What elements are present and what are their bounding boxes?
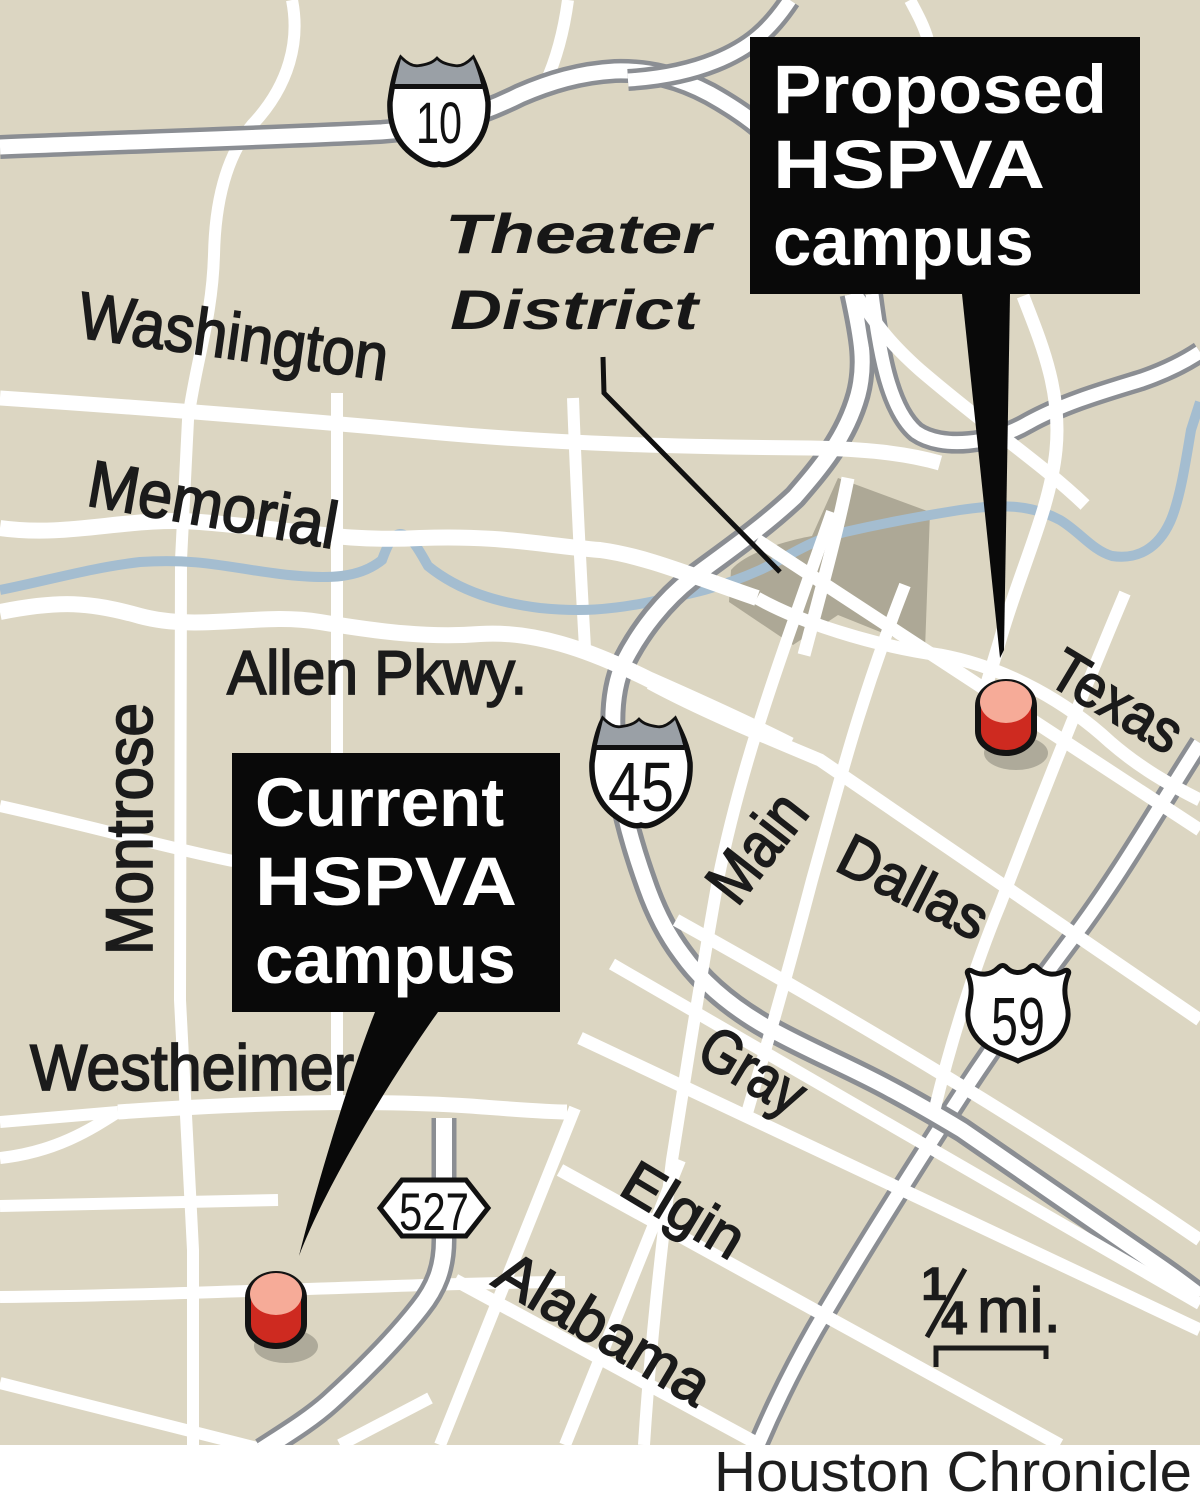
svg-text:59: 59 bbox=[991, 984, 1045, 1060]
svg-text:District: District bbox=[450, 278, 701, 341]
svg-text:Houston Chronicle: Houston Chronicle bbox=[714, 1440, 1192, 1504]
svg-text:Allen Pkwy.: Allen Pkwy. bbox=[227, 639, 527, 708]
svg-text:Current: Current bbox=[255, 764, 504, 841]
svg-text:45: 45 bbox=[608, 748, 674, 826]
svg-text:Montrose: Montrose bbox=[92, 703, 166, 955]
svg-text:mi.: mi. bbox=[977, 1276, 1061, 1346]
svg-text:HSPVA: HSPVA bbox=[255, 843, 517, 920]
svg-text:Proposed: Proposed bbox=[773, 51, 1107, 128]
svg-text:campus: campus bbox=[773, 203, 1034, 280]
svg-text:527: 527 bbox=[399, 1183, 469, 1242]
svg-text:Westheimer: Westheimer bbox=[30, 1031, 354, 1104]
svg-text:4: 4 bbox=[941, 1291, 967, 1344]
svg-text:10: 10 bbox=[416, 91, 462, 156]
svg-text:campus: campus bbox=[255, 921, 516, 998]
svg-text:Theater: Theater bbox=[445, 202, 715, 265]
svg-text:HSPVA: HSPVA bbox=[773, 126, 1045, 203]
